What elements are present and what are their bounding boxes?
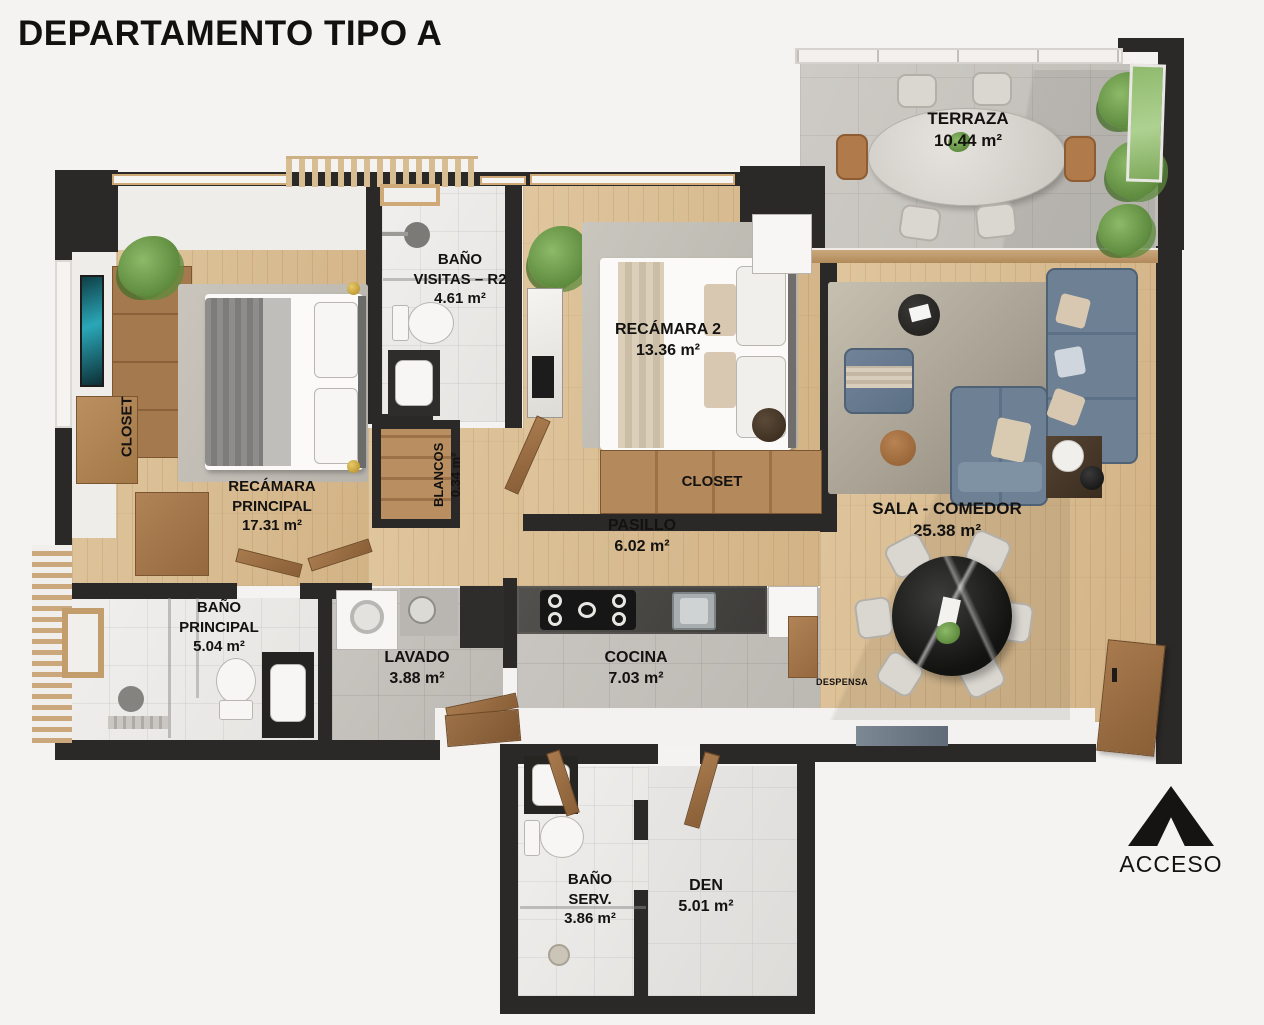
side-table-lamp <box>1080 466 1104 490</box>
bano-principal-label: BAÑO PRINCIPAL 5.04 m² <box>149 598 289 657</box>
wall-terraza-top-right <box>1118 38 1184 52</box>
shower-drain-servicio <box>548 944 570 966</box>
terraza-wall-art <box>1126 63 1166 182</box>
side-stool-wood <box>880 430 916 466</box>
side-table-tray <box>1052 440 1084 472</box>
terraza-chair-brown <box>836 134 868 180</box>
terraza-chair <box>972 72 1012 106</box>
burner-center <box>578 602 596 618</box>
wall-stub-right <box>797 744 815 1014</box>
lavado-cabinet-dark <box>460 586 504 648</box>
window-recamara2 <box>530 174 735 185</box>
window-small <box>480 176 526 185</box>
sala-comedor-label: SALA - COMEDOR 25.38 m² <box>847 498 1047 542</box>
wall-bottom-right <box>815 744 1096 762</box>
headboard-recamara2 <box>788 262 796 448</box>
wood-window-box <box>62 608 104 678</box>
wall-bano-lavado-divider <box>318 598 332 742</box>
burner <box>612 612 626 626</box>
despensa-label: DESPENSA <box>802 677 882 689</box>
pergola-slats <box>286 156 478 187</box>
bed-principal-throw <box>205 298 265 466</box>
terraza-sala-divider <box>800 248 1158 263</box>
tv-recamara2 <box>532 356 554 398</box>
cocina-label: COCINA 7.03 m² <box>566 648 706 690</box>
armchair-throw <box>846 366 912 388</box>
terraza-label: TERRAZA 10.44 m² <box>888 108 1048 152</box>
stool-recamara2 <box>752 408 786 442</box>
wall-den-bano-divider-a <box>634 800 648 840</box>
wall-above-bano-principal <box>55 583 237 599</box>
pillow-principal <box>314 302 358 378</box>
nightstand-lamp <box>347 282 360 295</box>
bed-principal-fold <box>263 298 291 466</box>
washer-door <box>350 600 384 634</box>
recamara2-label: RECÁMARA 2 13.36 m² <box>588 320 748 362</box>
lavado-sink <box>408 596 436 624</box>
dresser-recamara2 <box>752 214 812 274</box>
wall-stub-left <box>500 744 518 1014</box>
terraza-chair <box>898 203 942 242</box>
dining-chair <box>853 596 894 641</box>
wall-bottom-left <box>55 740 440 760</box>
toilet-bowl-principal <box>216 658 256 704</box>
closet-principal-label: CLOSET <box>117 367 137 487</box>
tv-console-marble <box>527 288 563 418</box>
shower-head-principal <box>118 686 144 712</box>
den-label: DEN 5.01 m² <box>646 876 766 918</box>
sink-principal <box>270 664 306 722</box>
terraza-chair-brown <box>1064 136 1096 182</box>
terraza-glass-top <box>795 48 1123 64</box>
pillow-principal <box>314 388 358 464</box>
window-recamara-principal <box>112 174 292 185</box>
terraza-chair <box>897 74 937 108</box>
wall-lavado-cocina-divider <box>503 578 517 668</box>
bano-servicio-label: BAÑO SERV. 3.86 m² <box>528 870 652 929</box>
blancos-label: BLANCOS 0.34 m² <box>431 420 465 530</box>
cutting-board <box>445 709 522 747</box>
toilet-tank-visitas <box>392 305 409 341</box>
tv-screen <box>80 275 104 387</box>
recamara-principal-label: RECÁMARA PRINCIPAL 17.31 m² <box>192 477 352 536</box>
terraza-chair <box>974 202 1017 240</box>
sink-visitas <box>395 360 433 406</box>
toilet-tank-servicio <box>524 820 540 856</box>
shower-arm <box>382 232 408 236</box>
acceso-label: ACCESO <box>1106 850 1236 880</box>
burner <box>612 594 626 608</box>
nightstand-lamp <box>347 460 360 473</box>
toilet-bowl-servicio <box>540 816 584 858</box>
wall-bano-visitas-left <box>366 172 382 424</box>
burner <box>548 612 562 626</box>
wall-stub-bottom <box>500 996 815 1014</box>
shower-bench <box>108 716 168 729</box>
entry-door-handle <box>1112 668 1117 682</box>
lavado-label: LAVADO 3.88 m² <box>352 648 482 690</box>
bano-visitas-label: BAÑO VISITAS – R2 4.61 m² <box>392 250 528 309</box>
entry-door <box>1096 639 1165 756</box>
floor-plan: DEPARTAMENTO TIPO A <box>0 0 1264 1025</box>
kitchen-sink-basin <box>680 598 708 624</box>
sofa-seat-cushion <box>958 462 1042 492</box>
toilet-tank-principal <box>219 700 253 720</box>
closet-recamara2-label: CLOSET <box>632 472 792 492</box>
acceso-arrow-icon <box>1128 786 1214 846</box>
window-left-wall <box>55 260 72 428</box>
pasillo-label: PASILLO 6.02 m² <box>572 516 712 558</box>
headboard-principal <box>358 296 366 468</box>
sofa-pillow <box>1054 346 1086 378</box>
doormat <box>856 726 948 746</box>
skylight-bano-visitas <box>380 184 440 206</box>
page-title: DEPARTAMENTO TIPO A <box>18 14 442 54</box>
burner <box>548 594 562 608</box>
despensa-cabinet <box>788 616 818 678</box>
